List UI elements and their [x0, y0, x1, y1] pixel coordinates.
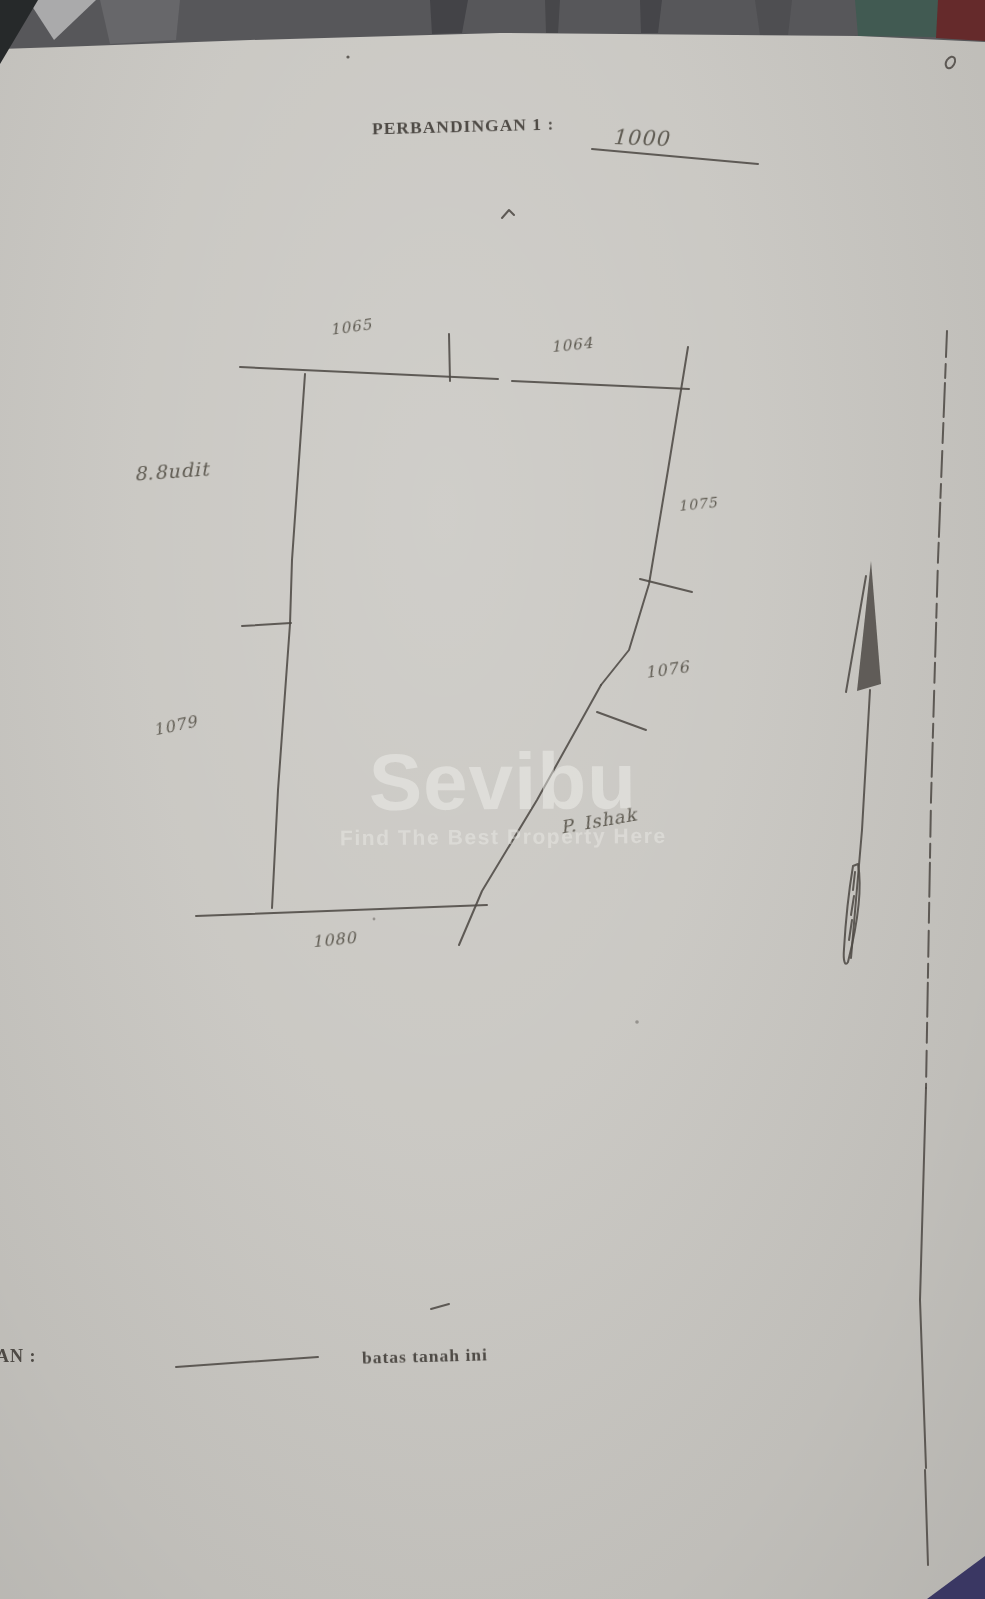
land-sketch-drawing	[0, 0, 985, 1599]
paper-edge-line	[920, 331, 947, 1565]
photo-top-band	[0, 0, 985, 64]
scale-value-handwritten: 1000	[612, 125, 670, 151]
plot-left-edge	[272, 374, 305, 908]
north-arrow-shaft	[851, 690, 870, 958]
legend-prefix: AN :	[0, 1346, 37, 1367]
photo-bottom-right-corner	[927, 1556, 985, 1599]
scale-underline	[592, 149, 758, 164]
legend-boundary-label: batas tanah ini	[362, 1344, 488, 1368]
north-arrow-icon	[844, 561, 881, 964]
top-boundary-tick	[449, 334, 450, 381]
left-boundary-tick	[242, 623, 291, 626]
plot-top-edge	[240, 367, 498, 379]
plot-boundary	[196, 334, 692, 945]
right-boundary-tick-lower	[597, 712, 646, 730]
plot-bottom-edge	[196, 905, 487, 916]
plot-top-edge-right	[512, 381, 689, 389]
plot-right-edge-upper	[601, 347, 688, 685]
legend-boundary-line	[176, 1357, 318, 1367]
paper-specks	[346, 55, 638, 1023]
photographed-land-sketch-document: PERBANDINGAN 1 : 1000 1065 1064 8.8udit …	[0, 0, 985, 1599]
